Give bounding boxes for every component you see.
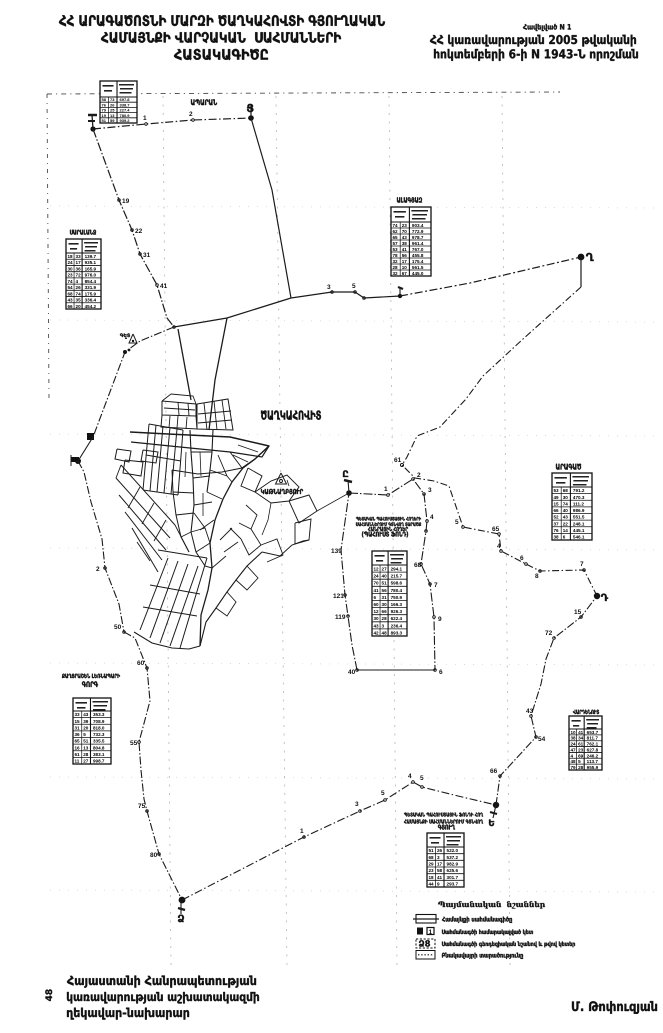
svg-text:29: 29	[429, 862, 435, 867]
svg-text:66: 66	[382, 609, 388, 614]
svg-text:455.8: 455.8	[412, 253, 424, 258]
svg-text:331.9: 331.9	[85, 285, 97, 290]
svg-text:780.4: 780.4	[391, 588, 403, 593]
svg-text:51: 51	[429, 848, 435, 853]
svg-text:294.1: 294.1	[391, 566, 403, 571]
svg-text:750.9: 750.9	[391, 595, 403, 600]
svg-text:47: 47	[571, 747, 577, 752]
svg-text:78: 78	[393, 253, 399, 258]
svg-text:23: 23	[68, 273, 74, 278]
svg-text:998.7: 998.7	[93, 759, 105, 764]
svg-text:336.4: 336.4	[85, 298, 97, 303]
svg-text:37: 37	[554, 521, 560, 526]
svg-text:28: 28	[83, 752, 89, 757]
svg-text:445.1: 445.1	[573, 528, 585, 533]
svg-text:6: 6	[439, 669, 443, 676]
svg-text:10: 10	[402, 265, 408, 270]
svg-text:56: 56	[402, 253, 408, 258]
svg-text:28: 28	[393, 265, 399, 270]
svg-text:3: 3	[428, 487, 432, 494]
svg-text:61: 61	[578, 742, 584, 747]
svg-text:15: 15	[574, 609, 582, 616]
svg-text:7: 7	[580, 561, 584, 568]
svg-text:215.7: 215.7	[391, 574, 403, 579]
svg-text:15: 15	[554, 501, 560, 506]
svg-text:58: 58	[437, 868, 443, 873]
svg-text:1: 1	[143, 115, 147, 122]
svg-text:18: 18	[68, 254, 74, 259]
svg-text:119: 119	[335, 614, 346, 621]
svg-text:31: 31	[143, 252, 151, 259]
svg-text:65: 65	[492, 526, 500, 533]
svg-text:23: 23	[578, 747, 584, 752]
svg-text:1: 1	[384, 486, 388, 493]
svg-text:60: 60	[137, 660, 145, 667]
svg-text:818.0: 818.0	[93, 725, 105, 730]
svg-text:8: 8	[535, 573, 539, 580]
svg-text:33: 33	[76, 254, 82, 259]
svg-text:23: 23	[402, 223, 408, 228]
svg-text:43: 43	[563, 515, 569, 520]
svg-text:551.5: 551.5	[573, 515, 585, 520]
svg-text:767.0: 767.0	[412, 247, 424, 252]
svg-text:335.5: 335.5	[93, 739, 105, 744]
svg-text:445.0: 445.0	[412, 271, 424, 276]
svg-text:65: 65	[393, 235, 399, 240]
svg-text:51: 51	[102, 118, 107, 123]
svg-text:165.9: 165.9	[85, 266, 97, 271]
svg-text:52: 52	[554, 515, 560, 520]
svg-text:4: 4	[430, 514, 434, 521]
svg-text:139.7: 139.7	[85, 254, 97, 259]
svg-text:1: 1	[300, 828, 304, 835]
svg-text:75: 75	[138, 803, 146, 810]
svg-text:301.7: 301.7	[447, 875, 459, 880]
svg-text:986.9: 986.9	[573, 508, 585, 513]
svg-text:15: 15	[75, 719, 81, 724]
svg-text:54: 54	[68, 285, 74, 290]
svg-text:762.1: 762.1	[587, 742, 599, 747]
svg-text:3: 3	[355, 801, 359, 808]
svg-text:43: 43	[374, 623, 380, 628]
svg-text:5: 5	[381, 790, 385, 797]
svg-text:6: 6	[563, 535, 566, 540]
svg-text:5: 5	[578, 759, 581, 764]
svg-text:43: 43	[402, 235, 408, 240]
svg-text:2: 2	[96, 566, 100, 573]
svg-text:67: 67	[402, 271, 408, 276]
svg-text:2: 2	[189, 111, 193, 118]
svg-text:69: 69	[578, 753, 584, 758]
svg-text:24: 24	[374, 574, 380, 579]
svg-text:74: 74	[68, 279, 74, 284]
svg-text:18: 18	[429, 875, 435, 880]
svg-text:732.3: 732.3	[93, 732, 105, 737]
svg-text:44: 44	[429, 882, 435, 887]
svg-text:22: 22	[135, 228, 143, 235]
svg-text:598.6: 598.6	[391, 581, 403, 586]
svg-text:9: 9	[437, 882, 440, 887]
svg-text:22: 22	[563, 521, 569, 526]
svg-text:43: 43	[68, 298, 74, 303]
svg-text:248.1: 248.1	[573, 521, 585, 526]
svg-text:74: 74	[563, 501, 569, 506]
svg-text:3: 3	[382, 623, 385, 628]
svg-text:60: 60	[374, 602, 380, 607]
svg-text:30: 30	[382, 602, 388, 607]
svg-text:24: 24	[571, 742, 577, 747]
svg-text:166.3: 166.3	[391, 602, 403, 607]
svg-text:854.4: 854.4	[85, 279, 97, 284]
svg-text:3: 3	[327, 284, 331, 291]
svg-text:40: 40	[348, 669, 356, 676]
svg-text:40: 40	[563, 508, 569, 513]
svg-text:74: 74	[76, 291, 82, 296]
svg-text:13: 13	[83, 745, 89, 750]
svg-text:30: 30	[374, 616, 380, 621]
svg-text:26: 26	[76, 285, 82, 290]
svg-text:31: 31	[382, 595, 388, 600]
svg-text:653.7: 653.7	[587, 730, 599, 735]
svg-text:28: 28	[578, 765, 584, 770]
svg-text:6: 6	[374, 595, 377, 600]
svg-text:11: 11	[75, 759, 80, 764]
svg-text:42: 42	[374, 630, 380, 635]
svg-text:12: 12	[374, 609, 380, 614]
svg-text:537.2: 537.2	[447, 855, 459, 860]
svg-text:36: 36	[76, 266, 82, 271]
svg-text:70: 70	[402, 229, 408, 234]
svg-text:939.2: 939.2	[120, 118, 131, 123]
svg-text:66: 66	[554, 508, 560, 513]
svg-text:70: 70	[374, 581, 380, 586]
svg-text:49: 49	[554, 495, 560, 500]
svg-text:35: 35	[76, 298, 82, 303]
svg-text:383.1: 383.1	[93, 752, 105, 757]
svg-text:17: 17	[76, 260, 82, 265]
svg-text:2: 2	[417, 472, 421, 479]
svg-text:627.8: 627.8	[587, 747, 599, 752]
svg-text:43: 43	[83, 712, 89, 717]
svg-text:56: 56	[382, 588, 388, 593]
svg-text:111.2: 111.2	[573, 501, 584, 506]
svg-text:41: 41	[437, 875, 443, 880]
svg-text:34: 34	[578, 736, 584, 741]
svg-text:32: 32	[393, 271, 399, 276]
svg-text:5: 5	[420, 775, 424, 782]
svg-text:4: 4	[497, 543, 501, 550]
svg-text:175.9: 175.9	[85, 291, 97, 296]
svg-text:353.3: 353.3	[93, 712, 105, 717]
svg-text:6: 6	[520, 555, 524, 562]
svg-text:51: 51	[382, 581, 388, 586]
svg-text:31: 31	[75, 725, 81, 730]
svg-text:14: 14	[563, 528, 569, 533]
svg-text:48: 48	[382, 630, 388, 635]
svg-text:978.7: 978.7	[412, 235, 424, 240]
svg-text:546.1: 546.1	[573, 535, 585, 540]
svg-text:903.4: 903.4	[412, 223, 424, 228]
svg-text:926.3: 926.3	[391, 609, 403, 614]
svg-text:40: 40	[382, 574, 388, 579]
svg-text:33: 33	[75, 712, 81, 717]
svg-text:27: 27	[83, 759, 89, 764]
svg-text:24: 24	[68, 260, 74, 265]
svg-text:72: 72	[545, 630, 553, 637]
svg-text:955.9: 955.9	[587, 765, 599, 770]
svg-text:522.0: 522.0	[447, 848, 459, 853]
svg-text:4: 4	[76, 279, 79, 284]
svg-text:982.9: 982.9	[447, 862, 459, 867]
svg-text:622.4: 622.4	[391, 616, 403, 621]
svg-text:68: 68	[563, 488, 569, 493]
svg-text:68: 68	[414, 562, 422, 569]
svg-text:30: 30	[68, 266, 74, 271]
svg-text:26: 26	[437, 848, 443, 853]
svg-text:5: 5	[352, 283, 356, 290]
svg-text:53: 53	[554, 488, 560, 493]
svg-text:19: 19	[122, 198, 130, 205]
svg-text:48: 48	[571, 759, 577, 764]
svg-text:36: 36	[75, 732, 81, 737]
svg-text:16: 16	[75, 745, 81, 750]
svg-text:893.3: 893.3	[391, 630, 403, 635]
svg-text:80: 80	[150, 852, 158, 859]
svg-text:32: 32	[393, 259, 399, 264]
svg-text:961.4: 961.4	[412, 241, 424, 246]
svg-text:17: 17	[402, 259, 408, 264]
svg-text:175.4: 175.4	[412, 259, 424, 264]
svg-text:66: 66	[68, 304, 74, 309]
svg-text:28: 28	[382, 616, 388, 621]
svg-text:20: 20	[76, 304, 82, 309]
svg-text:41: 41	[402, 247, 408, 252]
svg-text:59: 59	[110, 118, 115, 123]
svg-text:811.7: 811.7	[587, 736, 599, 741]
svg-text:804.8: 804.8	[93, 745, 105, 750]
svg-text:246.2: 246.2	[587, 753, 599, 758]
svg-text:39: 39	[83, 719, 89, 724]
svg-text:23: 23	[429, 868, 435, 873]
svg-text:51: 51	[83, 739, 89, 744]
svg-text:65: 65	[75, 739, 81, 744]
svg-text:72: 72	[76, 273, 82, 278]
svg-text:454.2: 454.2	[85, 304, 97, 309]
svg-text:38: 38	[554, 535, 560, 540]
svg-text:38: 38	[571, 736, 577, 741]
svg-text:561.5: 561.5	[412, 265, 424, 270]
svg-text:113.7: 113.7	[587, 759, 599, 764]
svg-text:625.6: 625.6	[447, 868, 459, 873]
svg-text:293.7: 293.7	[447, 882, 459, 887]
svg-text:62: 62	[393, 229, 399, 234]
svg-text:935.1: 935.1	[85, 260, 97, 265]
svg-text:41: 41	[578, 730, 584, 735]
svg-text:10: 10	[571, 730, 577, 735]
svg-text:79: 79	[571, 765, 577, 770]
svg-text:57: 57	[393, 241, 399, 246]
svg-text:68: 68	[429, 855, 435, 860]
svg-text:53: 53	[393, 247, 399, 252]
svg-text:3: 3	[437, 855, 440, 860]
svg-text:12: 12	[374, 566, 380, 571]
svg-text:121: 121	[333, 593, 344, 600]
svg-text:7: 7	[434, 582, 438, 589]
svg-text:20: 20	[83, 725, 89, 730]
svg-text:139: 139	[331, 548, 342, 555]
svg-text:708.9: 708.9	[93, 719, 105, 724]
svg-text:17: 17	[437, 862, 443, 867]
svg-text:66: 66	[490, 768, 498, 775]
svg-text:791.2: 791.2	[573, 488, 585, 493]
svg-text:41: 41	[374, 588, 380, 593]
svg-text:27: 27	[382, 566, 388, 571]
svg-text:4: 4	[408, 773, 412, 780]
svg-text:5: 5	[83, 732, 86, 737]
svg-text:61: 61	[75, 752, 81, 757]
svg-text:55: 55	[130, 740, 138, 747]
svg-text:68: 68	[68, 291, 74, 296]
svg-text:976.0: 976.0	[85, 273, 97, 278]
svg-text:38: 38	[402, 241, 408, 246]
svg-text:772.9: 772.9	[412, 229, 424, 234]
svg-text:236.4: 236.4	[391, 623, 403, 628]
svg-text:74: 74	[393, 223, 399, 228]
svg-text:54: 54	[538, 736, 546, 743]
svg-text:61: 61	[394, 457, 402, 464]
svg-text:4: 4	[571, 753, 574, 758]
svg-text:5: 5	[455, 519, 459, 526]
svg-text:41: 41	[160, 283, 168, 290]
svg-text:76: 76	[554, 528, 560, 533]
svg-text:470.3: 470.3	[573, 495, 585, 500]
svg-text:50: 50	[114, 624, 122, 631]
svg-text:9: 9	[438, 616, 442, 623]
svg-text:43: 43	[526, 708, 534, 715]
svg-text:1: 1	[429, 929, 433, 936]
svg-text:30: 30	[563, 495, 569, 500]
